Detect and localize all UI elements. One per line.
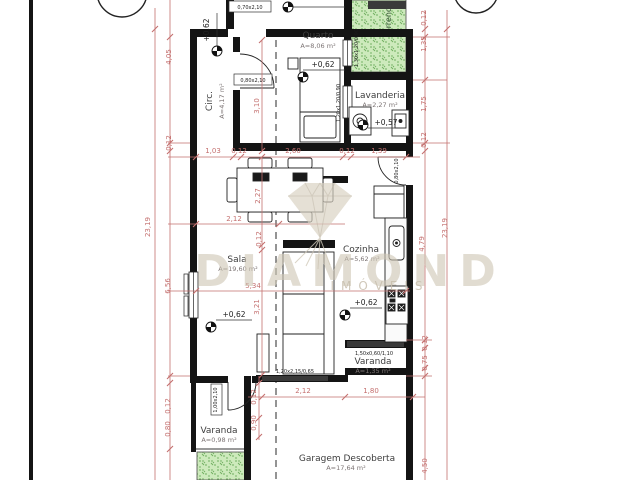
label-door-quarto: 0,80x2,10 [240,78,265,84]
level-symbol-lavanderia [358,120,368,130]
room-varanda-esq: Varanda [200,426,237,436]
wall-terreno-lavanderia [351,72,406,80]
dim-sala-top: 2,27 [254,188,262,204]
tv-stand [257,334,269,372]
wall-top-right [266,29,413,37]
dim-right-wall-top: 0,12 [420,10,428,26]
floor-plan-canvas: Terreno [0,0,640,480]
door-cozinha-arc [378,157,406,185]
wall-left-lower [190,317,197,380]
level-symbol-top [283,2,293,12]
area-varanda-esq: A=0,98 m² [201,436,237,444]
dim-top-0: 1,03 [205,147,221,155]
level-symbol-circ [212,46,222,56]
wall-circ-quarto-b [233,90,240,151]
area-quarto: A=8,06 m² [300,42,336,50]
label-door-banheiro: 0,70x2,10 [237,5,262,11]
dim-left-wall2: 0,12 [164,398,172,414]
window-shutter-b [184,296,188,316]
dim-right-varanda: 0,75 [421,355,429,371]
area-lavanderia: A=2,27 m² [362,101,398,109]
area-varanda-dir: A=1,35 m² [355,367,391,375]
dim-varanda-wall: 0,12 [250,389,258,405]
wall-varanda-esq-north [190,376,228,383]
bed [288,58,340,142]
dim-sala-width: 2,12 [226,215,242,223]
window-sill-top [368,1,406,9]
room-lavanderia: Lavanderia [355,91,405,101]
dim-left-total: 23,19 [144,217,152,237]
dim-left-wall: 0,12 [165,135,173,151]
fridge [374,186,404,218]
level-symbol-quarto [298,72,308,82]
survey-circle-left [97,0,147,17]
wall-right-upper [406,37,413,157]
level-circ: +0,62 [202,18,211,41]
area-circ: A=4,17 m² [218,83,226,119]
dim-left-sala: 6,56 [164,278,172,294]
dim-garagem-a: 2,12 [295,387,311,395]
dim-garagem-b: 1,80 [363,387,379,395]
dim-top-1: 0,12 [231,147,247,155]
room-varanda-dir: Varanda [354,357,391,367]
label-door-cozinha: 0,80x2,10 [394,158,400,183]
garden-green-patch [197,452,245,480]
wall-stub-b [344,0,352,37]
area-garagem: A=17,64 m² [326,464,366,472]
dim-top-4: 1,39 [371,147,387,155]
dim-wall-a: 0,12 [255,231,263,247]
room-quarto: Quarto [302,31,334,41]
wall-circ-quarto-a [233,37,240,52]
survey-circle-right [454,0,498,13]
room-circ: Circ. [205,91,215,111]
level-symbol-sala [206,322,216,332]
dim-sala-bottom: 3,21 [253,299,261,315]
label-door-varanda: 1,00x2,10 [213,387,219,412]
level-symbol-cozinha [340,310,350,320]
wall-left-upper [190,37,197,273]
dim-quarto-depth: 3,10 [253,98,261,114]
dim-right-wall-mid: 0,12 [420,132,428,148]
dim-right-lavanderia: 1,75 [420,96,428,112]
dim-top-3: 0,12 [339,147,355,155]
level-sala: +0,62 [223,310,246,319]
dim-right-terreno: 1,35 [420,36,428,52]
dim-left-circ: 4,05 [165,49,173,65]
property-line-left [29,0,33,480]
watermark-subbrand: IMÓVEIS [330,278,429,293]
dim-right-wall-low: 0,12 [421,335,429,351]
level-lavanderia: +0,57 [375,118,398,127]
level-cozinha: +0,62 [355,298,378,307]
dim-right-total: 23,19 [441,218,449,238]
window-sill-sala [262,376,328,381]
site-boundaries [29,0,498,480]
label-window-sala: 1,20x2,15/0,65 [276,369,314,375]
dim-top-2: 2,60 [285,147,301,155]
wall-varanda-esq-left [191,380,196,452]
dim-varanda-depth: 0,90 [250,415,258,431]
wall-jamb [252,376,258,383]
dim-right-garagem: 4,50 [421,458,429,474]
level-quarto: +0,62 [312,60,335,69]
label-window-quarto: 1,30x1,20/0,90 [354,29,360,67]
dim-left-recuo: 0,80 [164,421,172,437]
room-garagem: Garagem Descoberta [299,454,395,464]
label-window-lavanderia: 1,20x1,20/0,90 [336,84,342,122]
floor-plan-page: Terreno [0,0,640,480]
